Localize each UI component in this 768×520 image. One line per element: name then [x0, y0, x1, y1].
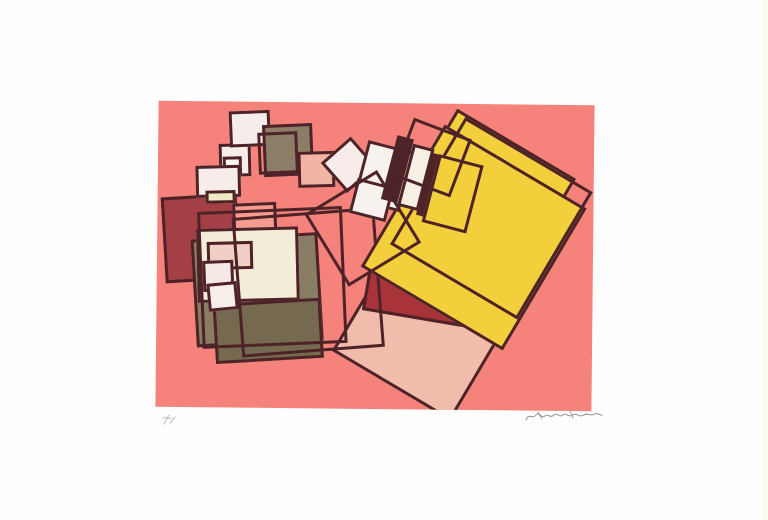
signature-glyph: [524, 407, 604, 425]
edition-mark-glyph: [159, 412, 181, 428]
shape-chain-outline-square: [257, 131, 299, 175]
artist-signature: [524, 407, 604, 425]
paper-edge: [763, 0, 768, 520]
artwork-canvas: [155, 101, 594, 412]
artwork-photo: [0, 0, 768, 520]
edition-mark: [159, 412, 181, 428]
shape-cream-strip: [205, 190, 235, 204]
